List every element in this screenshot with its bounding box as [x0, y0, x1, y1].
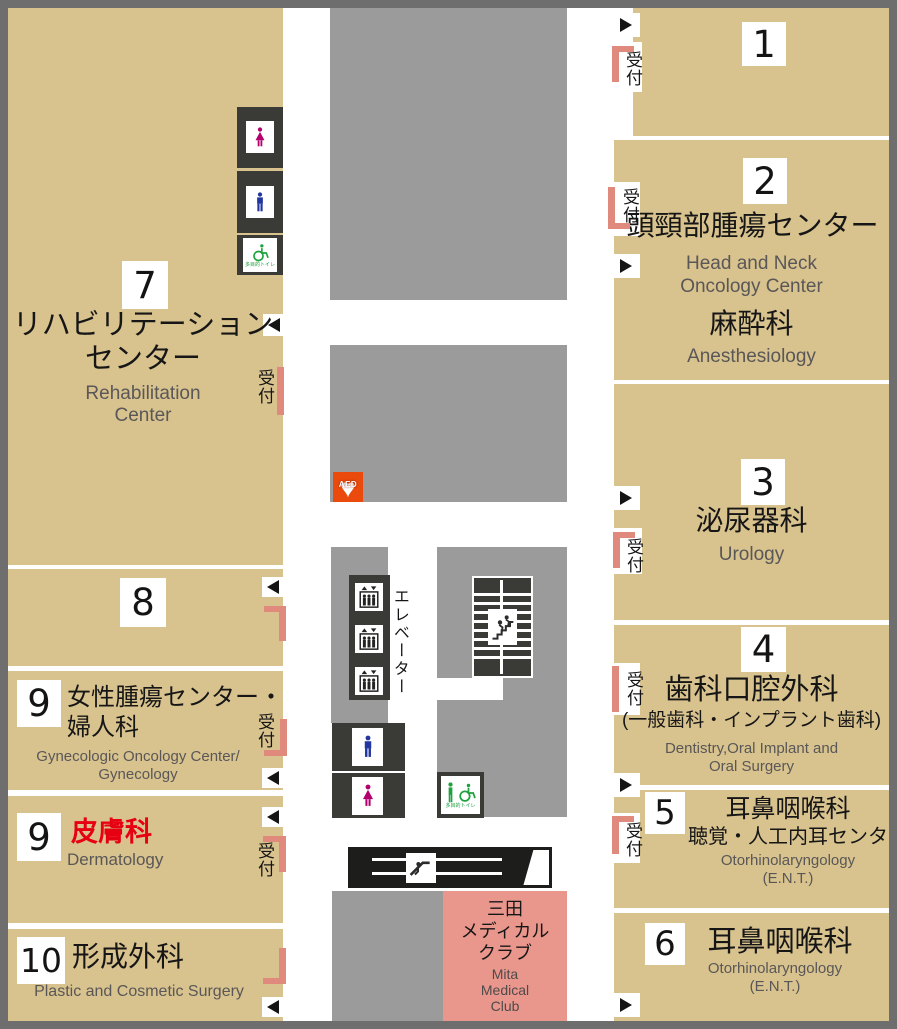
zone-6-title-ja: 耳鼻咽喉科: [690, 926, 870, 958]
zone-4-title-en-line2: Oral Surgery: [614, 759, 889, 776]
accessible-toilet-icon: 多目的トイレ: [243, 238, 277, 272]
zone-8-reception-marker: [264, 606, 286, 641]
zone-5-reception-label: 受付: [620, 822, 645, 866]
zone-3-number: 3: [741, 459, 785, 505]
zone-9gyn-title-ja-line1: 女性腫瘍センター・: [67, 685, 267, 712]
zone-9derm-title-en: Dermatology: [67, 851, 207, 870]
zone-2-anesthesiology-ja: 麻酔科: [614, 308, 889, 339]
zone7-accessible-toilet: 多目的トイレ: [237, 235, 283, 275]
aed-icon: ♥ AED: [333, 472, 363, 502]
zone-4-title-ja-line2: (一般歯科・インプラント歯科): [614, 710, 889, 731]
zone-10-number: 10: [17, 937, 65, 984]
zone-3-title-ja: 泌尿器科: [614, 505, 889, 536]
zone-9derm-number: 9: [17, 813, 61, 861]
accessible-toilet-label: 多目的トイレ: [245, 263, 275, 268]
zone-1-number: 1: [742, 22, 786, 66]
zone-2-reception-label: 受付: [617, 188, 642, 232]
zone-9derm-reception-label: 受付: [252, 842, 277, 890]
mita-title-ja-line3: クラブ: [443, 939, 567, 965]
arrow-right-icon: [620, 998, 632, 1012]
zone-4-title-ja-line1: 歯科口腔外科: [614, 674, 889, 706]
zone-5-title-en-line1: Otorhinolaryngology: [688, 853, 888, 870]
zone7-mens-toilet: [237, 171, 283, 233]
stairs-icon: [488, 609, 517, 645]
mita-title-en-line1: Mita: [443, 966, 567, 982]
elevator-label: エレベーター: [390, 577, 408, 707]
elevator-icon: [355, 625, 383, 653]
zone-7-reception-label: 受付: [252, 369, 277, 417]
zone-8-arrow-patch: [262, 577, 284, 597]
accessible-toilet-label: 多目的トイレ: [445, 804, 475, 809]
zone-9derm-arrow-patch: [262, 807, 284, 827]
zone-4-title-en-line1: Dentistry,Oral Implant and: [614, 741, 889, 758]
zone-5-number: 5: [645, 792, 685, 834]
zone-10-title-en: Plastic and Cosmetic Surgery: [10, 983, 268, 1001]
zone-2-number: 2: [743, 158, 787, 204]
zone-7-title-en-line2: Center: [8, 406, 278, 427]
zone-5-title-ja-line1: 耳鼻咽喉科: [688, 795, 888, 823]
zone-9gyn-title-en-line1: Gynecologic Oncology Center/: [12, 749, 264, 766]
zone-6-title-en-line1: Otorhinolaryngology: [660, 961, 890, 978]
zone-5-title-ja-line2: 聴覚・人工内耳センター: [688, 826, 888, 848]
womens-toilet-icon: [352, 777, 383, 815]
zone-9derm-title-ja: 皮膚科: [71, 817, 211, 847]
mens-toilet-icon: [246, 186, 274, 218]
zone-3-reception-label: 受付: [621, 538, 646, 582]
zone-2-title-en-line1: Head and Neck: [614, 254, 889, 275]
zone-4-number: 4: [741, 627, 786, 672]
corridor-block-top: [330, 8, 567, 300]
zone-9gyn-number: 9: [17, 680, 61, 727]
elevator-icon: [355, 583, 383, 611]
escalator: [348, 847, 552, 888]
zone-5-title-en-line2: (E.N.T.): [688, 871, 888, 888]
zone-6-title-en-line2: (E.N.T.): [660, 979, 890, 996]
zone-7-title-ja-line2: センター: [8, 343, 278, 375]
arrow-right-icon: [620, 491, 632, 505]
arrow-right-icon: [620, 18, 632, 32]
womens-toilet: [332, 773, 405, 818]
stairs: [472, 576, 533, 678]
zone-1-arrow-patch: [612, 13, 640, 37]
zone-2-anesthesiology-en: Anesthesiology: [614, 347, 889, 368]
mita-title-en-line3: Club: [443, 998, 567, 1014]
zone-4-arrow-patch: [612, 773, 640, 797]
zone-1-reception-label: 受付: [620, 51, 645, 95]
zone-9gyn-title-en-line2: Gynecology: [12, 767, 264, 784]
mita-title-en-line2: Medical: [443, 982, 567, 998]
arrow-left-icon: [267, 1000, 279, 1014]
zone-10-title-ja: 形成外科: [72, 941, 232, 972]
zone-8-number: 8: [120, 578, 166, 627]
zone-9gyn-reception-label: 受付: [252, 713, 277, 761]
zone-9gyn-arrow-patch: [262, 768, 284, 788]
escalator-icon: [406, 853, 436, 883]
arrow-right-icon: [620, 778, 632, 792]
zone-10-reception-marker: [263, 948, 286, 984]
zone-7-title-en-line1: Rehabilitation: [8, 384, 278, 405]
zone-4-reception-label: 受付: [621, 671, 646, 715]
elevator-bank: [349, 575, 390, 700]
zone-6-number: 6: [645, 923, 685, 965]
aed-label: AED: [339, 480, 357, 489]
zone-7-title-ja-line1: リハビリテーション: [8, 309, 278, 341]
accessible-toilet-icon: 多目的トイレ: [441, 776, 480, 814]
mens-toilet-icon: [352, 728, 383, 766]
arrow-left-icon: [267, 810, 279, 824]
accessible-toilet: 多目的トイレ: [437, 772, 484, 818]
arrow-left-icon: [267, 580, 279, 594]
corridor-block-mid: [330, 345, 567, 502]
zone-4-reception-marker: [612, 666, 619, 712]
zone-9gyn-title-ja-line2: 婦人科: [67, 715, 267, 742]
zone-6-arrow-patch: [612, 993, 640, 1017]
mens-toilet: [332, 723, 405, 771]
zone-3-title-en: Urology: [614, 545, 889, 566]
arrow-left-icon: [267, 771, 279, 785]
zone-2-title-en-line2: Oncology Center: [614, 277, 889, 298]
elevator-icon: [355, 667, 383, 695]
womens-toilet-icon: [246, 121, 274, 153]
corridor-notch: [437, 678, 503, 700]
zone7-womens-toilet: [237, 107, 283, 168]
corridor-block-bottom: [332, 891, 443, 1021]
zone-2-title-ja: 頭頸部腫瘍センター: [616, 210, 889, 241]
zone-7-number: 7: [122, 261, 168, 309]
zone-7-reception-marker: [277, 367, 284, 415]
hospital-floor-map: ♥ AED エレベーター: [0, 0, 897, 1029]
